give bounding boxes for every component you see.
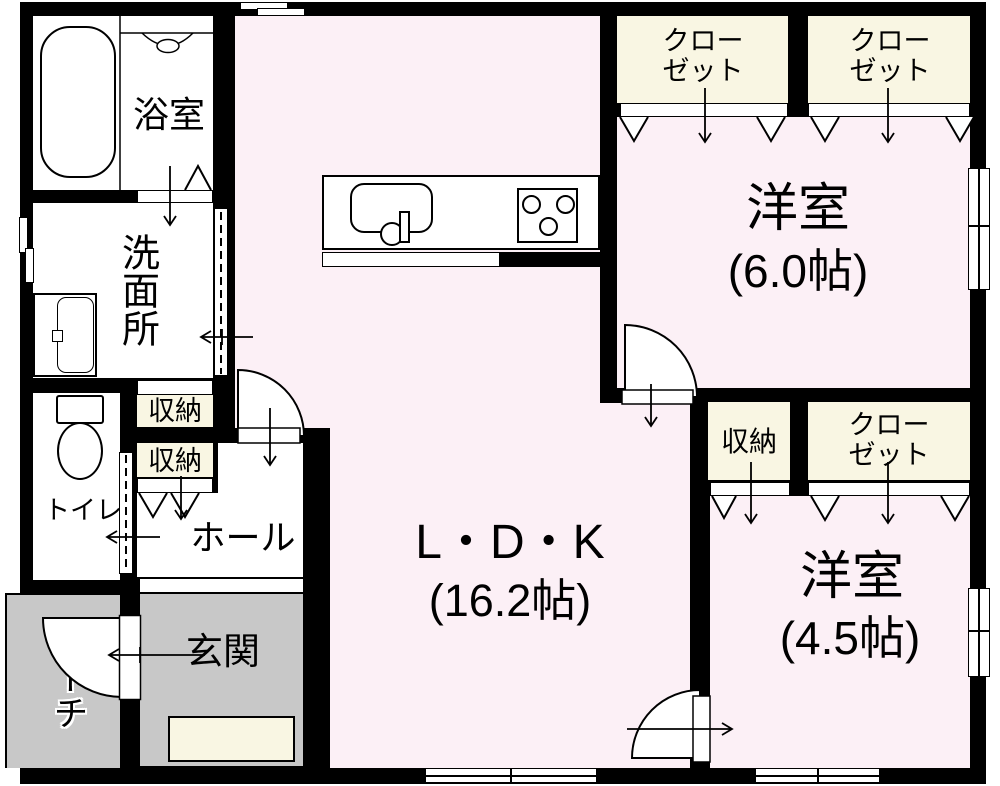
shoe-cabinet <box>168 716 295 762</box>
porch-label: ポーチ <box>48 612 87 742</box>
closet-mid-label: クロー ゼット <box>823 410 955 470</box>
bedroom-small-window <box>968 588 990 677</box>
closet-top-right-label: クロー ゼット <box>824 26 956 86</box>
closet-top-left-label: クロー ゼット <box>637 26 769 86</box>
ldk-label: L・D・K <box>410 516 610 570</box>
bedroom-small-bottom-window <box>755 768 880 783</box>
closet-top-right-line2: ゼット <box>824 56 956 86</box>
bathroom-door-track <box>137 190 213 203</box>
stove-burner <box>522 195 541 214</box>
closet-top-right-line1: クロー <box>824 26 956 56</box>
closet-top-right-track <box>808 103 970 117</box>
storage-lower-door-track <box>137 478 213 493</box>
storage-mid-track <box>710 482 790 496</box>
bedroom-small-label: 洋室 <box>772 548 932 606</box>
washroom-label: 洗面所 <box>115 220 158 360</box>
storage-upper-door-track <box>137 380 213 395</box>
hall-floor-upper <box>218 443 303 493</box>
floor-plan: 浴室 洗面所 収納 収納 トイレ ホール 玄関 ポーチ L・D・K (16.2帖… <box>0 0 1000 786</box>
closet-top-left-line1: クロー <box>637 26 769 56</box>
washroom-window <box>25 248 34 283</box>
closet-top-left-line2: ゼット <box>637 56 769 86</box>
counter-ledge <box>322 252 500 267</box>
ldk-top-window <box>257 8 305 16</box>
stove-burner <box>539 217 558 236</box>
bathtub <box>40 26 116 178</box>
closet-top-left-track <box>620 103 788 117</box>
stove-burner <box>556 195 575 214</box>
kitchen-faucet-lever <box>399 211 410 243</box>
entrance-step <box>140 577 303 594</box>
bedroom-large-label: 洋室 <box>718 180 878 238</box>
washroom-sliding-door-channel <box>214 208 228 376</box>
closet-mid-line2: ゼット <box>823 440 955 470</box>
entrance-label: 玄関 <box>180 631 266 672</box>
closet-mid-track <box>808 482 970 496</box>
hall-label: ホール <box>181 519 305 558</box>
ldk-size-label: (16.2帖) <box>400 576 620 626</box>
storage-lower-label: 収納 <box>139 446 211 476</box>
vanity-handle <box>52 330 63 342</box>
counter-half-wall <box>500 252 601 267</box>
bathroom-label: 浴室 <box>126 95 212 135</box>
bedroom-large-window <box>968 168 990 290</box>
toilet-bowl <box>57 422 103 480</box>
storage-mid-label: 収納 <box>710 426 788 457</box>
bedroom-small-size-label: (4.5帖) <box>745 613 955 665</box>
toilet-label: トイレ <box>44 496 120 525</box>
ldk-bottom-window <box>425 768 597 783</box>
bedroom-large-size-label: (6.0帖) <box>698 246 898 298</box>
toilet-tank <box>56 395 104 424</box>
storage-upper-label: 収納 <box>139 396 211 426</box>
closet-mid-line1: クロー <box>823 410 955 440</box>
